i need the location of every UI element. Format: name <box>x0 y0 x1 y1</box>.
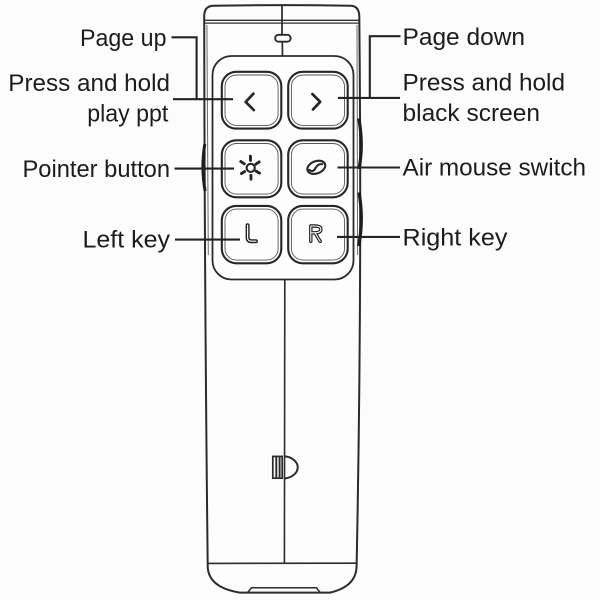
svg-text:Right key: Right key <box>403 225 508 252</box>
svg-text:Page down: Page down <box>403 24 526 51</box>
svg-text:Left key: Left key <box>83 227 171 254</box>
svg-text:Press and hold: Press and hold <box>8 70 170 97</box>
svg-text:Air mouse switch: Air mouse switch <box>403 154 587 181</box>
svg-text:Press and hold: Press and hold <box>403 69 566 96</box>
svg-text:play ppt: play ppt <box>87 101 168 128</box>
svg-text:Pointer button: Pointer button <box>23 156 171 183</box>
svg-text:black screen: black screen <box>403 100 541 127</box>
svg-text:Page up: Page up <box>80 25 167 52</box>
